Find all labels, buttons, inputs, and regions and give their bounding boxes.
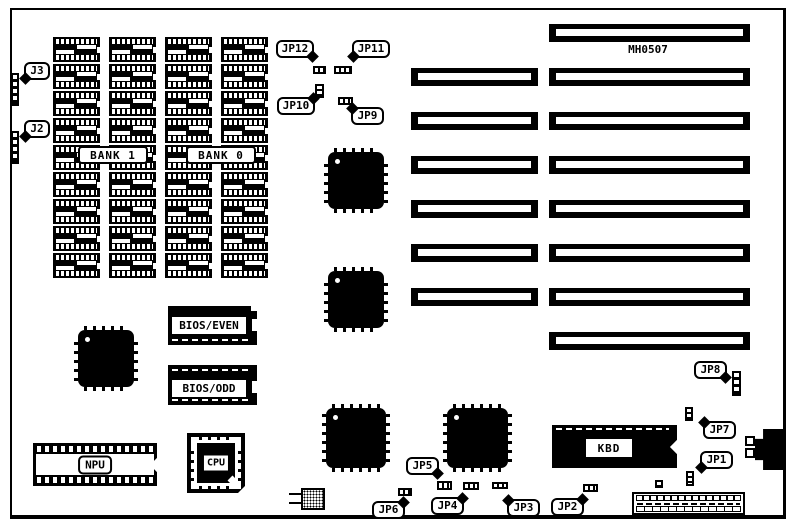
- jp1-jumper: [686, 471, 694, 486]
- expansion-slot: [411, 288, 538, 306]
- qfp-chip: [74, 326, 138, 391]
- kbd-chip: KBD: [552, 425, 677, 468]
- pin1-dot-icon: [335, 278, 340, 283]
- memory-chip: [53, 172, 100, 197]
- expansion-slot: [549, 332, 750, 350]
- jp8-label: JP8: [694, 361, 727, 379]
- cpu-label: CPU: [204, 456, 228, 471]
- memory-chip: [165, 253, 212, 278]
- slots-right: [549, 24, 750, 376]
- jp7-label: JP7: [703, 421, 736, 439]
- jp12-jumper: [313, 66, 326, 74]
- expansion-slot: [411, 112, 538, 130]
- memory-chip: [109, 172, 156, 197]
- kbd-label: KBD: [586, 439, 632, 457]
- jp12-label: JP12: [276, 40, 314, 58]
- expansion-slot: [549, 156, 750, 174]
- expansion-slot: [549, 200, 750, 218]
- expansion-slot: [549, 244, 750, 262]
- memory-chip: [109, 64, 156, 89]
- memory-chip: [53, 226, 100, 251]
- memory-chip: [221, 118, 268, 143]
- qfp-chip: [324, 148, 388, 213]
- power-pin-row-top: [636, 495, 741, 501]
- memory-chip: [165, 199, 212, 224]
- cpu-corner-fold: [237, 485, 246, 494]
- expansion-slot: [549, 288, 750, 306]
- bank1-label: BANK 1: [78, 146, 148, 164]
- jp2-jumper: [583, 484, 598, 492]
- bios-even-dash: [172, 339, 252, 341]
- memory-chip: [109, 226, 156, 251]
- expansion-slot: [549, 112, 750, 130]
- power-dash: [637, 503, 740, 505]
- npu-label: NPU: [78, 455, 112, 474]
- memory-chip: [109, 253, 156, 278]
- memory-chip: [165, 118, 212, 143]
- jp3-label: JP3: [507, 499, 540, 517]
- din-contact: [745, 448, 755, 458]
- memory-chip: [109, 199, 156, 224]
- jp1-label: JP1: [700, 451, 733, 469]
- bios-odd-chip: BIOS/ODD: [168, 365, 257, 405]
- memory-chip: [221, 64, 268, 89]
- bios-odd-notch: [252, 381, 257, 393]
- memory-chip: [109, 37, 156, 62]
- jp8-connector: [732, 371, 741, 396]
- memory-chip: [53, 199, 100, 224]
- memory-chip: [165, 37, 212, 62]
- kbd-dash: [556, 428, 669, 430]
- expansion-slot: [549, 68, 750, 86]
- memory-chip: [221, 199, 268, 224]
- board-model-label: MH0507: [616, 43, 680, 56]
- jp2-label: JP2: [551, 498, 584, 516]
- memory-chip: [221, 253, 268, 278]
- j2-label: J2: [24, 120, 50, 138]
- j3-label: J3: [24, 62, 50, 80]
- expansion-slot: [549, 24, 750, 42]
- jp10-label: JP10: [277, 97, 315, 115]
- bios-even-chip: BIOS/EVEN: [168, 306, 257, 345]
- jp3-jumper: [492, 482, 508, 489]
- expansion-slot: [411, 244, 538, 262]
- cpu-socket: CPU: [187, 433, 245, 493]
- expansion-slot: [411, 68, 538, 86]
- qfp-chip: [324, 267, 388, 332]
- power-pin-row-bottom: [636, 506, 741, 512]
- memory-chip: [221, 37, 268, 62]
- pin1-dot-icon: [85, 337, 90, 342]
- memory-chip: [221, 226, 268, 251]
- memory-chip: [165, 91, 212, 116]
- qfp-chip: [322, 404, 390, 472]
- memory-chip: [109, 91, 156, 116]
- memory-chip: [53, 118, 100, 143]
- npu-pin-row-top: [37, 446, 153, 452]
- memory-chip: [53, 64, 100, 89]
- power-connector: [632, 492, 745, 515]
- npu-socket: NPU: [33, 443, 157, 486]
- bank0-label: BANK 0: [186, 146, 256, 164]
- jp4-jumper: [463, 482, 479, 490]
- memory-chip: [221, 172, 268, 197]
- jp11-jumper: [334, 66, 352, 74]
- expansion-slot: [411, 156, 538, 174]
- jp5-jumper: [437, 481, 452, 490]
- bios-odd-dash-bottom: [172, 399, 252, 401]
- pin1-dot-icon: [335, 159, 340, 164]
- memory-chip: [109, 118, 156, 143]
- bios-even-corner-notch: [251, 306, 257, 311]
- memory-chip: [165, 172, 212, 197]
- npu-pin-row-bottom: [37, 477, 153, 483]
- memory-chip: [165, 64, 212, 89]
- jp5-label: JP5: [406, 457, 439, 475]
- small-component: [655, 480, 663, 488]
- crystal-oscillator: [301, 488, 325, 510]
- jp6-label: JP6: [372, 501, 405, 519]
- pin1-dot-icon: [333, 415, 338, 420]
- motherboard-diagram: BANK 1 BANK 0 J3 J2 JP12 JP11 JP10 JP9 M…: [0, 0, 791, 527]
- memory-chip: [53, 37, 100, 62]
- bios-odd-label: BIOS/ODD: [172, 380, 246, 397]
- memory-chip: [53, 253, 100, 278]
- bios-even-notch: [252, 319, 257, 331]
- qfp-chip: [443, 404, 512, 472]
- bios-odd-dash-top: [172, 369, 252, 371]
- crystal-lead: [289, 502, 301, 504]
- din-contact: [745, 436, 755, 446]
- crystal-lead: [289, 493, 301, 495]
- jp11-label: JP11: [352, 40, 390, 58]
- expansion-slot: [411, 200, 538, 218]
- jp6-jumper: [398, 488, 412, 496]
- jp7-jumper: [685, 407, 693, 421]
- jp4-label: JP4: [431, 497, 464, 515]
- bios-even-label: BIOS/EVEN: [172, 317, 246, 334]
- pin1-dot-icon: [454, 415, 459, 420]
- memory-chip: [165, 226, 212, 251]
- memory-chip: [221, 91, 268, 116]
- memory-chip: [53, 91, 100, 116]
- slots-left: [411, 68, 538, 332]
- jp9-label: JP9: [351, 107, 384, 125]
